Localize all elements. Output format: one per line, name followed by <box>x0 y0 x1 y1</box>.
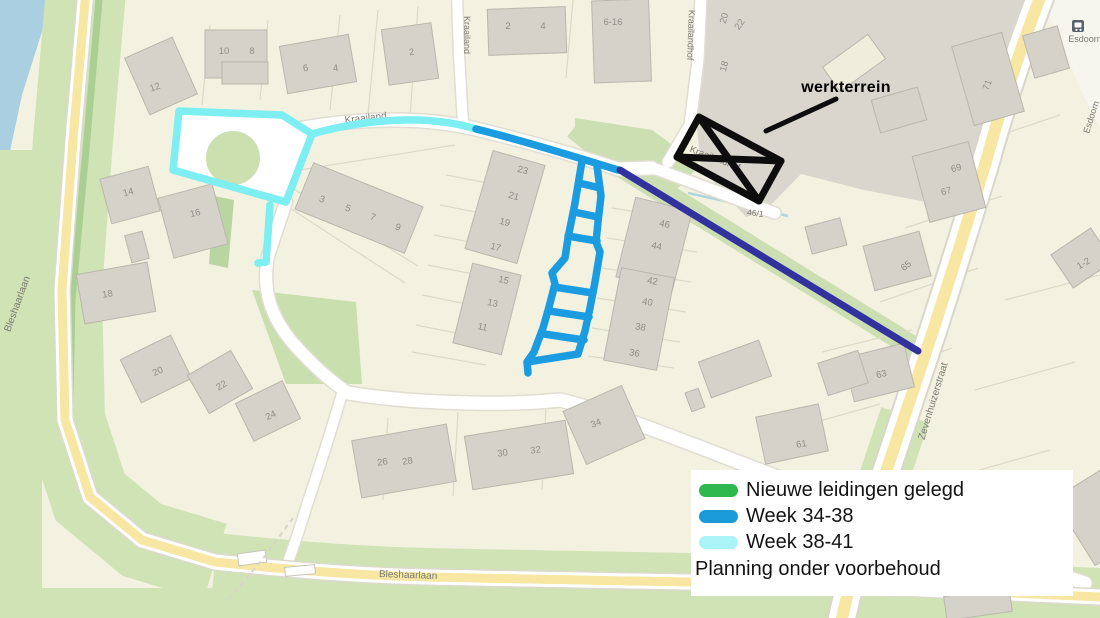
house-number-label: 32 <box>530 444 542 456</box>
house-number-label: 46 <box>658 218 671 231</box>
bus-stop-icon <box>1072 20 1084 32</box>
building <box>487 7 567 56</box>
legend-color-chip <box>699 510 738 523</box>
map-screenshot: { "legend": { "items": [ {"label": "Nieu… <box>0 0 1100 618</box>
street-label: Kraailand <box>462 16 472 54</box>
house-number-label: 6-16 <box>603 17 622 28</box>
house-number-label: 8 <box>249 46 254 57</box>
legend-item-label: Nieuwe leidingen gelegd <box>746 480 964 500</box>
house-number-label: 36 <box>628 347 640 360</box>
legend-item: Nieuwe leidingen gelegd <box>695 477 1073 503</box>
legend-item-label: Week 38-41 <box>746 532 853 552</box>
house-number-label: 61 <box>795 438 807 451</box>
street-label: Kraailandhof <box>685 10 697 61</box>
legend-items: Nieuwe leidingen gelegdWeek 34-38Week 38… <box>695 477 1073 555</box>
legend: Nieuwe leidingen gelegdWeek 34-38Week 38… <box>691 470 1073 596</box>
house-number-label: 15 <box>497 274 510 287</box>
house-number-label: 28 <box>401 455 413 468</box>
house-number-label: 10 <box>219 46 230 57</box>
house-number-label: 44 <box>650 240 663 253</box>
work-area-label: werkterrein <box>800 79 891 96</box>
house-number-label: 40 <box>641 296 653 309</box>
legend-color-chip <box>699 484 738 497</box>
legend-color-chip <box>699 536 738 549</box>
house-number-label: 38 <box>634 321 646 334</box>
house-number-label: 18 <box>101 288 113 301</box>
legend-item-label: Week 34-38 <box>746 506 853 526</box>
legend-note: Planning onder voorbehoud <box>695 558 1073 581</box>
street-label: Bleshaarlaan <box>379 569 438 582</box>
house-number-label: 42 <box>646 275 658 288</box>
house-number-label: 2 <box>505 21 510 32</box>
building <box>592 0 652 83</box>
house-number-label: 4 <box>540 21 545 32</box>
building <box>222 62 268 84</box>
house-number-label: 63 <box>875 368 888 381</box>
house-number-label: 13 <box>486 297 499 310</box>
legend-item: Week 38-41 <box>695 529 1073 555</box>
legend-item: Week 34-38 <box>695 503 1073 529</box>
house-number-label: 26 <box>376 456 388 469</box>
street-label: Esdoorn <box>1068 34 1100 44</box>
house-number-label: 30 <box>497 447 509 459</box>
